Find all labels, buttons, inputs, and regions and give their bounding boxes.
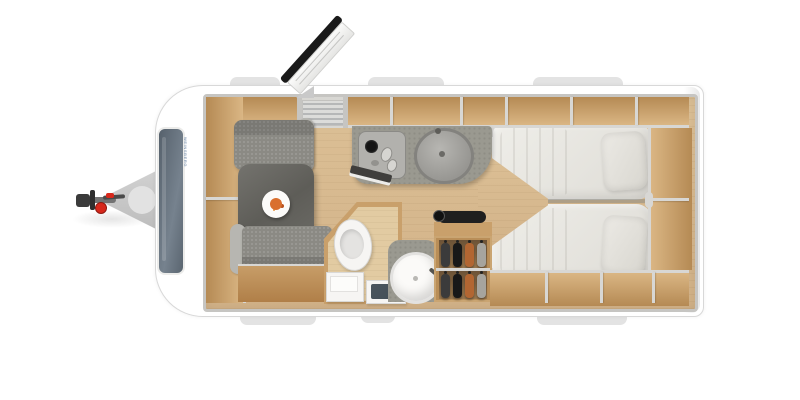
jockey-wheel-mount [128, 186, 156, 214]
door-seal-line [299, 35, 344, 85]
locker-divider [505, 97, 508, 125]
entrance-door-open [280, 15, 357, 96]
wardrobe [434, 236, 492, 302]
locker-divider [390, 97, 393, 125]
coupling-head [76, 194, 90, 207]
hanging-clothes [465, 243, 474, 267]
step-upper-tier [330, 276, 358, 292]
overhead-locker-bottom [490, 270, 689, 306]
food [270, 198, 282, 210]
locker-divider [460, 97, 463, 125]
kitchen-sink [414, 128, 474, 184]
locker-divider [600, 272, 603, 303]
red-jockey-knob [95, 202, 107, 214]
hanging-clothes [441, 243, 450, 267]
dinette-bench-front [234, 120, 314, 170]
bed-gap-line [540, 199, 652, 203]
handbrake-red-grip [106, 193, 114, 198]
sink-drain [439, 151, 445, 157]
wardrobe-shelf-upper [439, 240, 487, 268]
speaker-knob [433, 210, 445, 222]
hanging-clothes [441, 274, 450, 298]
dinner-plate [262, 190, 290, 218]
wardrobe-shelf-lower [439, 271, 487, 299]
locker-divider [652, 272, 655, 303]
basin-drain [413, 276, 418, 281]
rear-shelf-divider [648, 198, 689, 201]
panoramic-front-window [157, 127, 185, 275]
rear-shelf-end-cap [645, 192, 653, 208]
bench-backrest [234, 120, 314, 135]
locker-divider [545, 272, 548, 303]
brand-label: WEINSBERG [183, 137, 188, 179]
entry-step [326, 272, 364, 302]
hanging-clothes [477, 274, 486, 298]
locker-divider [570, 97, 573, 125]
pillow-left-bed [600, 131, 648, 192]
bench-storage-base [238, 264, 332, 302]
toilet-bowl [338, 228, 365, 260]
sink-faucet [435, 128, 441, 134]
hob-knob [371, 160, 379, 166]
locker-divider [635, 97, 638, 125]
wardrobe-shelf-divider [436, 268, 490, 271]
hanging-clothes [453, 243, 462, 267]
caravan-floorplan: WEINSBERG [0, 0, 800, 400]
soundbar [438, 211, 486, 223]
window-reflection [162, 137, 166, 261]
hob-burner-large [365, 140, 378, 153]
hanging-clothes [465, 274, 474, 298]
pillow-right-bed [600, 215, 648, 276]
hanging-clothes [477, 243, 486, 267]
hanging-clothes [453, 274, 462, 298]
